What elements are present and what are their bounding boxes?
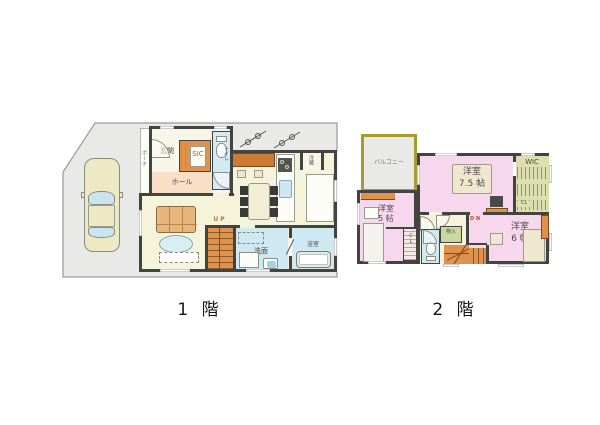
car-rear-window bbox=[88, 227, 115, 238]
f2-window-main-top bbox=[435, 153, 457, 156]
bedroom-left-desk bbox=[364, 207, 379, 219]
counter-stool-2 bbox=[254, 170, 263, 178]
washing-machine bbox=[239, 252, 259, 268]
f1-wall-left-upper bbox=[149, 126, 152, 196]
car-roof bbox=[88, 205, 115, 227]
sic-label: SIC bbox=[188, 150, 208, 158]
f1-window-bottom-washroom bbox=[246, 269, 270, 272]
dining-table bbox=[248, 183, 270, 220]
sic-shelf-hatch bbox=[181, 143, 187, 169]
wic-shelf-top bbox=[517, 167, 547, 179]
f2-window-6j-bottom bbox=[498, 264, 524, 267]
toilet-tank bbox=[216, 136, 227, 142]
floor1-plan: ポーチ ホール 玄関 SIC トイレ bbox=[0, 0, 350, 425]
floor2-plan: バルコニー 洋室 5 帖 CL 洋室 7.5 帖 bbox=[350, 0, 600, 425]
f2-wall-hall-right-upper bbox=[466, 215, 469, 245]
storage-label: 物入 bbox=[440, 230, 462, 236]
toilet-f1-label: トイレ bbox=[223, 146, 228, 161]
f1-window-right-bath bbox=[334, 238, 337, 256]
wic: WIC CL bbox=[515, 156, 549, 212]
car-windshield bbox=[88, 191, 115, 205]
kitchen-unit bbox=[276, 154, 295, 222]
kitchen-sink bbox=[279, 180, 292, 198]
bedroom-main-name: 洋室 bbox=[446, 167, 498, 177]
toilet-f2-tank bbox=[426, 256, 436, 261]
bedroom-left-bed bbox=[363, 223, 384, 262]
bedroom-right-side-table bbox=[490, 233, 503, 245]
stove-burner-1 bbox=[280, 160, 284, 164]
bathtub bbox=[296, 251, 331, 268]
f1-wall-wet-top bbox=[205, 225, 337, 228]
stairs-up-label: U P bbox=[206, 217, 232, 224]
car bbox=[84, 158, 120, 252]
winder-line-3 bbox=[444, 253, 469, 254]
stairs-f2-flight bbox=[469, 248, 486, 264]
fridge-nook-wall-left bbox=[300, 152, 303, 170]
stove-burner-2 bbox=[285, 165, 289, 169]
f1-wall-entrance-kitchen bbox=[230, 126, 233, 196]
f2-wall-5j-cl bbox=[386, 227, 417, 229]
balcony-label: バルコニー bbox=[367, 160, 411, 167]
stairs-f1-centerline bbox=[219, 227, 220, 270]
porch-label: ポーチ bbox=[140, 150, 146, 167]
f2-wall-stairs-right bbox=[486, 245, 489, 264]
f2-wall-stairs-top bbox=[466, 243, 487, 245]
wic-door-gap bbox=[513, 162, 516, 176]
living-table bbox=[159, 235, 193, 253]
stairs-f1 bbox=[207, 227, 233, 270]
floor2-caption: 2 階 bbox=[400, 295, 510, 320]
tv-board-outline bbox=[159, 252, 199, 263]
washroom-shelf-outline bbox=[238, 232, 264, 244]
f2-window-wic-right bbox=[549, 165, 552, 183]
floorplan-canvas: ポーチ ホール 玄関 SIC トイレ bbox=[0, 0, 600, 425]
f2-balcony-door-gap bbox=[417, 165, 420, 185]
sofa bbox=[156, 206, 196, 233]
sofa-seat-line bbox=[157, 224, 197, 225]
f1-washroom-door-gap bbox=[240, 225, 255, 228]
f2-window-5j-left bbox=[357, 203, 360, 225]
bedroom-main-size: 7.5 帖 bbox=[446, 179, 498, 189]
closet-cl-label: CL bbox=[408, 233, 413, 245]
car-mirror-left bbox=[81, 192, 85, 198]
fridge-label: 冷蔵 bbox=[308, 155, 313, 165]
bedroom-main-tv bbox=[490, 196, 503, 207]
f2-bedroom-right-door-gap bbox=[470, 212, 483, 215]
f1-wall-stairs-right bbox=[233, 225, 236, 272]
wash-basin bbox=[263, 258, 278, 269]
stairs-down-label: D N bbox=[467, 217, 483, 223]
counter-stool-1 bbox=[237, 170, 246, 178]
f1-window-right-kitchen bbox=[334, 180, 337, 202]
fridge-nook-wall-right bbox=[321, 152, 324, 170]
wic-label: WIC bbox=[515, 158, 549, 166]
ceiling-light-icon bbox=[272, 129, 304, 151]
wic-cl-label: CL bbox=[517, 201, 531, 207]
ceiling-light-icon bbox=[238, 128, 270, 150]
f1-window-toilet-top bbox=[214, 126, 227, 129]
pantry-cabinet bbox=[306, 174, 334, 222]
bathroom-label: 浴室 bbox=[298, 242, 328, 249]
f1-window-left-living bbox=[139, 210, 142, 236]
bedroom-left-closet-strip bbox=[361, 193, 395, 200]
f1-window-entrance-top bbox=[160, 126, 174, 129]
floor2-right-section: 洋室 7.5 帖 WIC CL bbox=[417, 153, 549, 264]
wash-basin-bowl bbox=[267, 261, 276, 268]
f1-wall-stairs-left bbox=[205, 225, 208, 272]
f1-hall-opening bbox=[213, 193, 229, 196]
floor2-left-section: 洋室 5 帖 CL bbox=[357, 190, 417, 264]
f2-window-wic-top bbox=[521, 153, 535, 156]
f1-bath-door-fold bbox=[286, 239, 294, 255]
f1-window-bottom-living bbox=[160, 269, 190, 272]
stove bbox=[278, 158, 292, 172]
f2-window-5j-bottom bbox=[368, 261, 386, 264]
floor1-caption: 1 階 bbox=[145, 295, 255, 320]
stairs-f2-winder bbox=[444, 245, 469, 264]
bedroom-right-dresser bbox=[541, 215, 549, 239]
f2-window-hall-bottom bbox=[443, 264, 459, 267]
hall-label: ホール bbox=[160, 178, 204, 186]
wic-shelf-mid bbox=[517, 184, 547, 196]
f2-window-6j-right bbox=[549, 233, 552, 251]
car-mirror-right bbox=[119, 192, 123, 198]
kitchen-counter bbox=[232, 153, 275, 167]
